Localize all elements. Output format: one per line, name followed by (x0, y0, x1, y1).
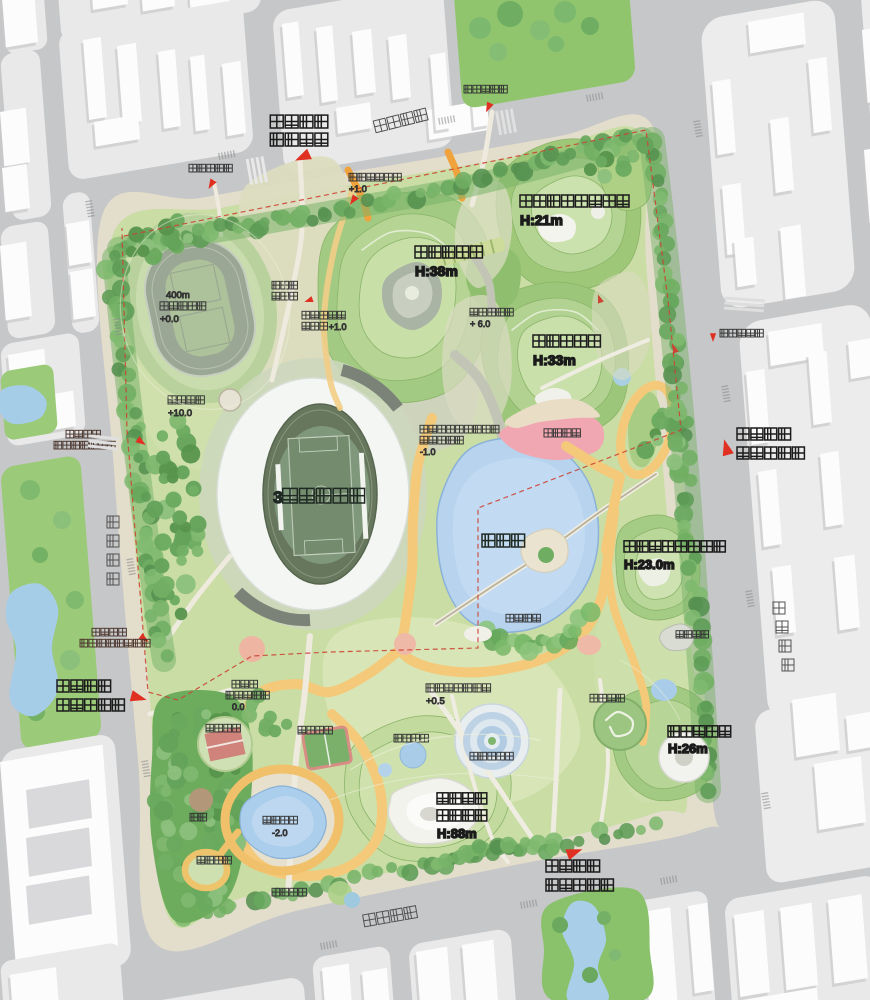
svg-text:400m: 400m (166, 290, 190, 301)
svg-text:H:33m: H:33m (533, 352, 576, 368)
svg-text:3: 3 (273, 488, 282, 507)
svg-text:0.0: 0.0 (232, 702, 245, 712)
svg-text:H:21m: H:21m (520, 212, 563, 228)
svg-text:+10.0: +10.0 (168, 408, 192, 419)
svg-text:-1.0: -1.0 (420, 447, 436, 457)
svg-text:H:23.0m: H:23.0m (624, 557, 675, 572)
svg-text:+1.0: +1.0 (349, 184, 367, 194)
svg-text:+0.5: +0.5 (426, 696, 445, 707)
svg-text:+ 6.0: + 6.0 (470, 319, 490, 329)
svg-text:+0.0: +0.0 (160, 314, 179, 325)
svg-text:-2.0: -2.0 (272, 828, 288, 838)
svg-text:H:88m: H:88m (437, 826, 477, 841)
svg-text:H:38m: H:38m (415, 263, 458, 279)
svg-text:+1.0: +1.0 (329, 322, 347, 332)
svg-text:H:26m: H:26m (668, 741, 708, 756)
